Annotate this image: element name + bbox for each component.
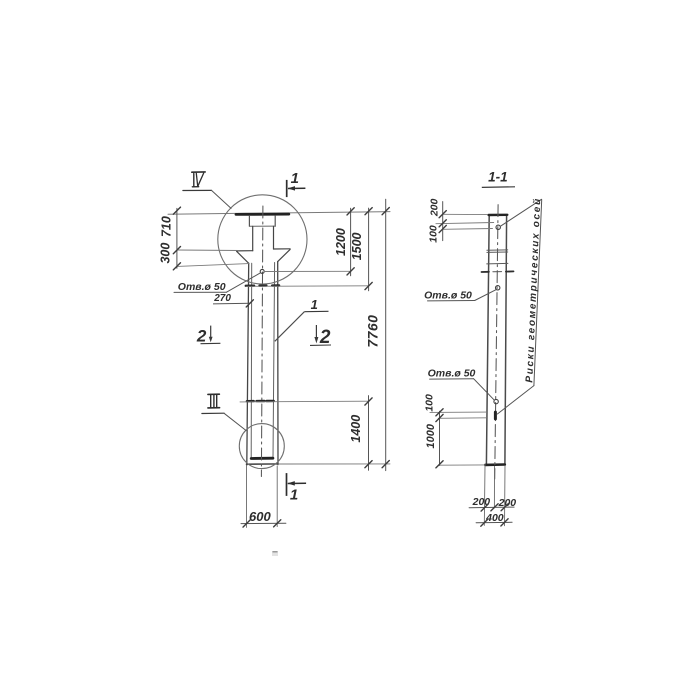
svg-text:400: 400	[485, 512, 504, 524]
svg-text:1: 1	[311, 297, 318, 312]
svg-text:1400: 1400	[349, 415, 363, 443]
svg-text:Отв.ø 50: Отв.ø 50	[428, 367, 476, 379]
svg-text:710: 710	[159, 216, 173, 237]
svg-text:Отв.ø 50: Отв.ø 50	[178, 281, 226, 293]
svg-text:200: 200	[429, 198, 441, 217]
svg-text:270: 270	[213, 293, 231, 304]
svg-text:200: 200	[498, 497, 517, 509]
svg-text:1: 1	[290, 487, 298, 504]
svg-text:1500: 1500	[350, 232, 364, 260]
svg-text:7760: 7760	[364, 315, 380, 348]
svg-text:1-1: 1-1	[488, 170, 508, 185]
svg-text:Риски геометрических осей: Риски геометрических осей	[524, 197, 543, 383]
svg-text:200: 200	[472, 496, 491, 508]
svg-text:2: 2	[196, 326, 207, 345]
svg-text:100: 100	[423, 394, 435, 412]
svg-text:1: 1	[291, 170, 299, 187]
svg-text:1000: 1000	[425, 423, 437, 448]
svg-text:600: 600	[249, 509, 271, 524]
svg-text:300: 300	[159, 243, 173, 264]
svg-text:Отв.ø 50: Отв.ø 50	[424, 290, 472, 302]
svg-text:1200: 1200	[334, 228, 348, 256]
svg-text:100: 100	[427, 225, 439, 243]
